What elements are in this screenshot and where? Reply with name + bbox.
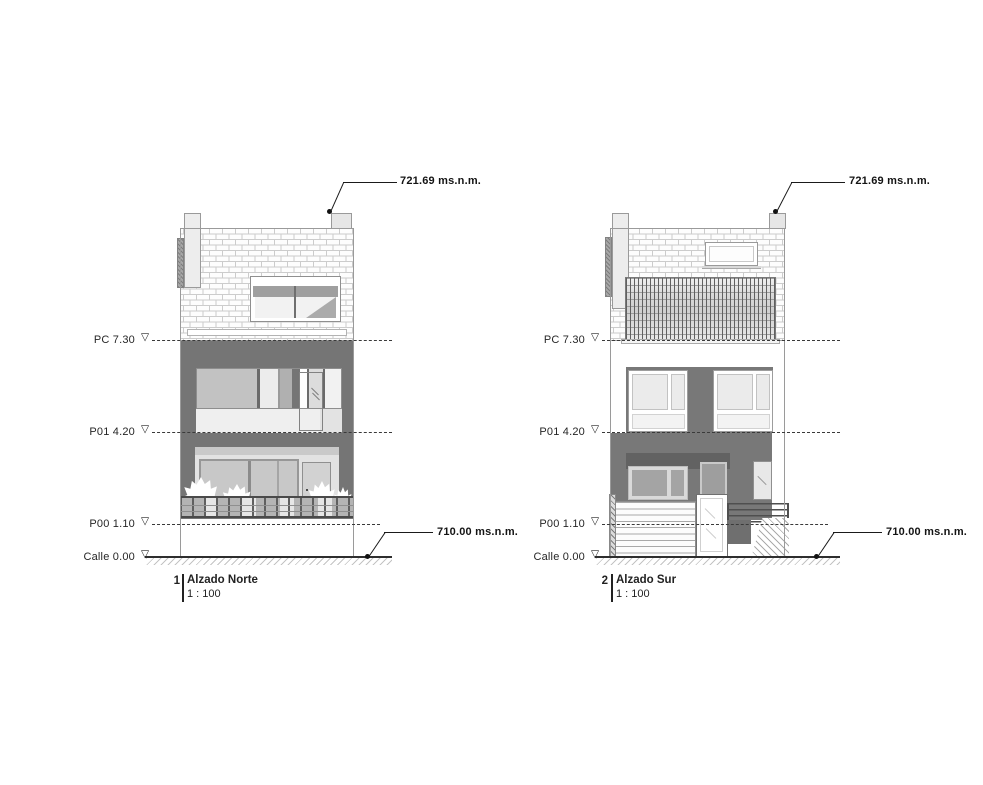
door-panel xyxy=(700,498,723,552)
railing-rail xyxy=(180,511,354,512)
glass-reflection xyxy=(757,476,766,485)
chimney-right xyxy=(769,213,786,229)
level-dash-p00 xyxy=(152,524,380,525)
railing-rail xyxy=(180,505,354,506)
drawing-canvas[interactable]: PC 7.30 P01 4.20 P00 1.10 Calle 0.00 ▽ ▽… xyxy=(0,0,983,785)
balcony-door-outline xyxy=(299,372,323,431)
level-label-pc: PC 7.30 xyxy=(85,334,135,346)
window-pane xyxy=(632,470,667,496)
level-label-p01: P01 4.20 xyxy=(85,426,135,438)
view-title: Alzado Sur xyxy=(616,574,676,586)
mullion xyxy=(294,286,296,318)
level-label-calle: Calle 0.00 xyxy=(78,551,135,563)
altitude-annotation-street: 710.00 ms.n.m. xyxy=(437,526,518,538)
level-label-p00: P00 1.10 xyxy=(85,518,135,530)
chimney-right xyxy=(331,213,352,229)
chimney-left-flue xyxy=(177,238,184,288)
p01-sill-corner xyxy=(320,409,342,433)
p00-side-glass-door xyxy=(753,461,772,500)
title-divider xyxy=(611,574,613,602)
level-marker-icon: ▽ xyxy=(141,516,149,527)
terrace-railing xyxy=(180,496,354,518)
spandrel-panel xyxy=(717,414,770,429)
p00-window xyxy=(628,466,688,500)
level-label-p00: P00 1.10 xyxy=(535,518,585,530)
leader-line xyxy=(330,183,344,213)
level-dash-p01 xyxy=(152,432,392,433)
altitude-annotation-street: 710.00 ms.n.m. xyxy=(886,526,967,538)
level-marker-icon: ▽ xyxy=(141,424,149,435)
view-number: 1 xyxy=(164,575,180,587)
door-handle xyxy=(306,489,308,491)
leader-line xyxy=(776,183,792,213)
level-dash-p00 xyxy=(602,524,828,525)
leader-line xyxy=(343,182,397,183)
entry-door xyxy=(696,494,728,558)
title-divider xyxy=(182,574,184,602)
window-sill xyxy=(702,266,761,269)
cornice-band xyxy=(187,329,347,336)
window-pane xyxy=(671,374,685,410)
leader-line xyxy=(368,532,386,557)
level-marker-icon: ▽ xyxy=(141,549,149,560)
level-dash-pc xyxy=(602,340,840,341)
level-dash-pc xyxy=(152,340,392,341)
level-marker-icon: ▽ xyxy=(591,424,599,435)
window-pane xyxy=(671,470,684,496)
window-pane xyxy=(632,374,668,410)
window-glazing xyxy=(709,246,754,262)
chimney-left-flue xyxy=(605,237,612,297)
altitude-annotation-top: 721.69 ms.n.m. xyxy=(400,175,481,187)
leader-line xyxy=(384,532,433,533)
attic-window xyxy=(705,242,758,266)
level-marker-icon: ▽ xyxy=(591,549,599,560)
altitude-annotation-top: 721.69 ms.n.m. xyxy=(849,175,930,187)
level-label-pc: PC 7.30 xyxy=(535,334,585,346)
level-dash-p01 xyxy=(602,432,840,433)
garage-door xyxy=(613,501,696,558)
leader-line xyxy=(791,182,845,183)
p01-window-right xyxy=(713,370,773,432)
window-pane xyxy=(325,369,341,408)
leader-line xyxy=(833,532,882,533)
p01-window-left xyxy=(628,370,688,432)
chimney-left xyxy=(184,213,201,288)
level-marker-icon: ▽ xyxy=(141,332,149,343)
level-marker-icon: ▽ xyxy=(591,516,599,527)
window-pane xyxy=(197,369,257,408)
window-pane xyxy=(756,374,770,410)
window-pane xyxy=(717,374,753,410)
view-scale: 1 : 100 xyxy=(616,588,650,600)
view-number: 2 xyxy=(592,575,608,587)
level-label-p01: P01 4.20 xyxy=(535,426,585,438)
window-pane xyxy=(260,369,278,408)
level-label-calle: Calle 0.00 xyxy=(528,551,585,563)
leader-line xyxy=(817,532,835,557)
p00-lintel xyxy=(195,447,339,455)
window-pane xyxy=(280,369,292,408)
view-title: Alzado Norte xyxy=(187,574,258,586)
spandrel-panel xyxy=(632,414,685,429)
jamb-hatch xyxy=(609,494,616,558)
lattice-screen xyxy=(625,277,776,340)
attic-window xyxy=(250,276,341,322)
level-marker-icon: ▽ xyxy=(591,332,599,343)
ground-hatch xyxy=(596,558,840,565)
ground-hatch xyxy=(146,558,392,565)
view-scale: 1 : 100 xyxy=(187,588,221,600)
